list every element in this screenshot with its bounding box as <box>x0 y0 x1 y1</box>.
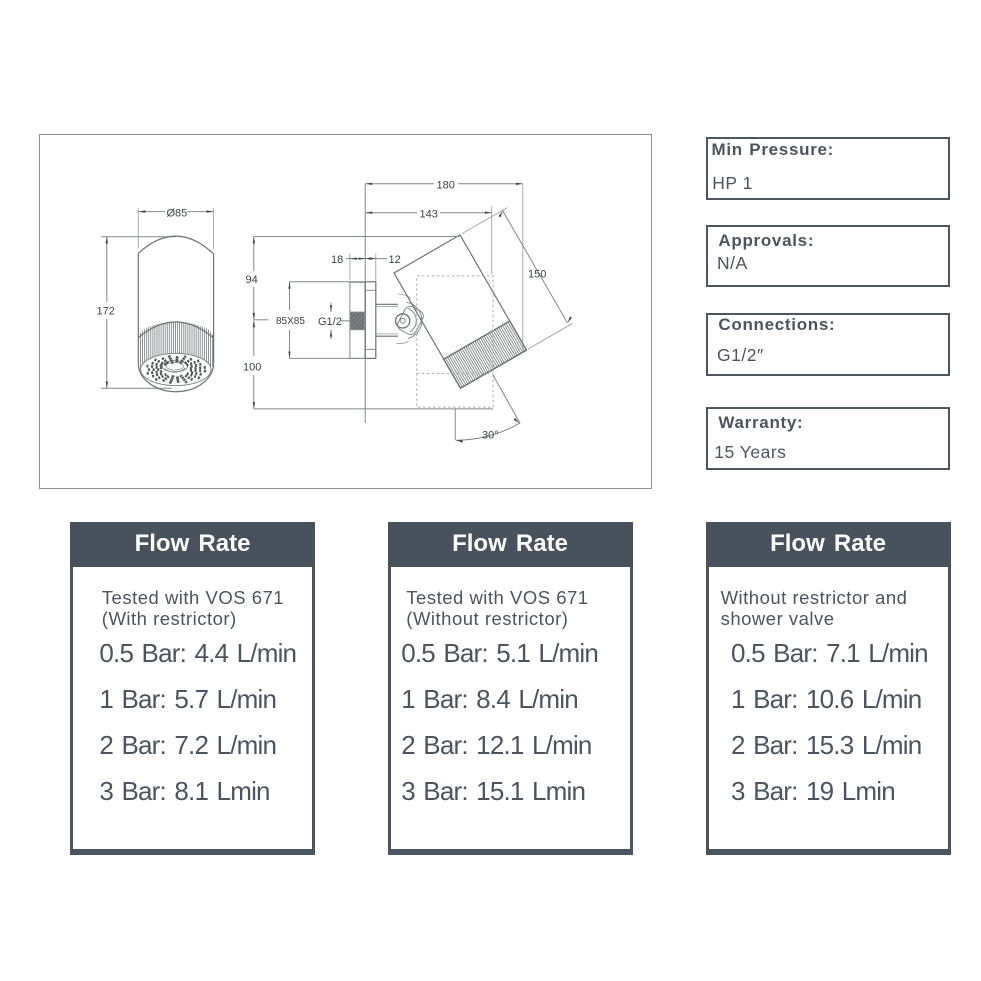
svg-text:30°: 30° <box>482 430 499 442</box>
svg-text:18: 18 <box>331 254 343 266</box>
svg-text:94: 94 <box>246 274 258 286</box>
svg-text:143: 143 <box>420 208 438 220</box>
svg-text:12: 12 <box>389 254 401 266</box>
svg-text:172: 172 <box>97 306 115 318</box>
svg-text:85X85: 85X85 <box>276 316 305 327</box>
svg-text:100: 100 <box>243 362 261 374</box>
svg-text:G1/2: G1/2 <box>318 316 342 328</box>
svg-text:Ø85: Ø85 <box>167 207 188 219</box>
svg-text:180: 180 <box>437 179 455 191</box>
svg-text:150: 150 <box>528 269 546 281</box>
